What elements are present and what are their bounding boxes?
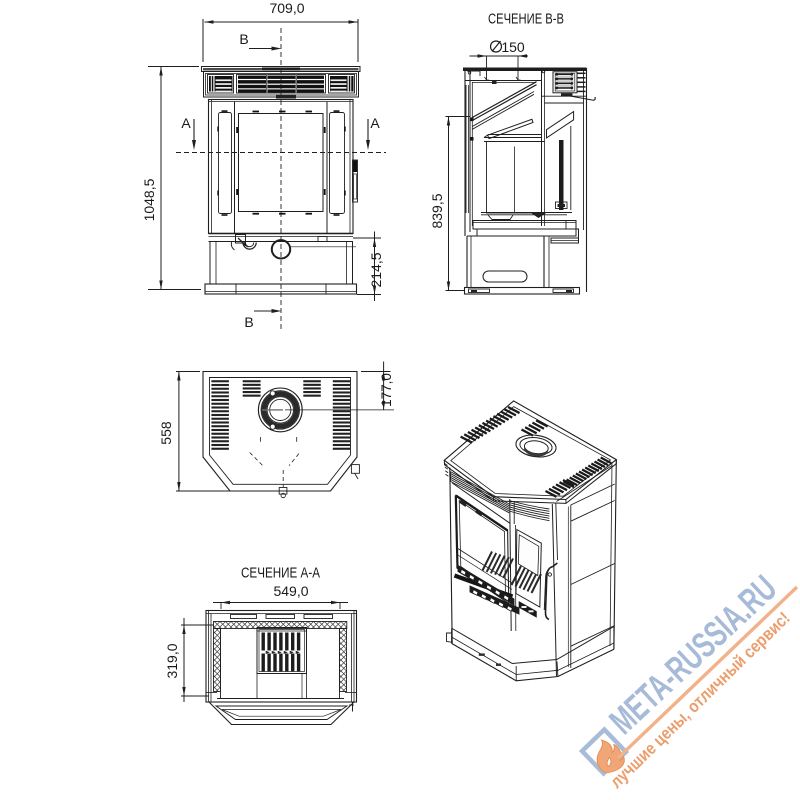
svg-text:B: B <box>244 314 253 330</box>
svg-text:B: B <box>239 31 248 47</box>
svg-text:СЕЧЕНИЕ В-В: СЕЧЕНИЕ В-В <box>488 11 564 28</box>
svg-text:A: A <box>181 115 191 131</box>
svg-text:549,0: 549,0 <box>273 583 308 599</box>
svg-text:839,5: 839,5 <box>429 193 445 228</box>
svg-text:709,0: 709,0 <box>269 0 304 16</box>
svg-text:558: 558 <box>158 421 174 445</box>
svg-text:150: 150 <box>501 39 525 55</box>
svg-text:A: A <box>370 115 380 131</box>
svg-text:214,5: 214,5 <box>368 252 384 287</box>
svg-text:177,0: 177,0 <box>379 373 394 407</box>
svg-text:СЕЧЕНИЕ А-А: СЕЧЕНИЕ А-А <box>241 565 320 582</box>
svg-text:319,0: 319,0 <box>164 643 180 678</box>
svg-text:1048,5: 1048,5 <box>141 178 157 221</box>
